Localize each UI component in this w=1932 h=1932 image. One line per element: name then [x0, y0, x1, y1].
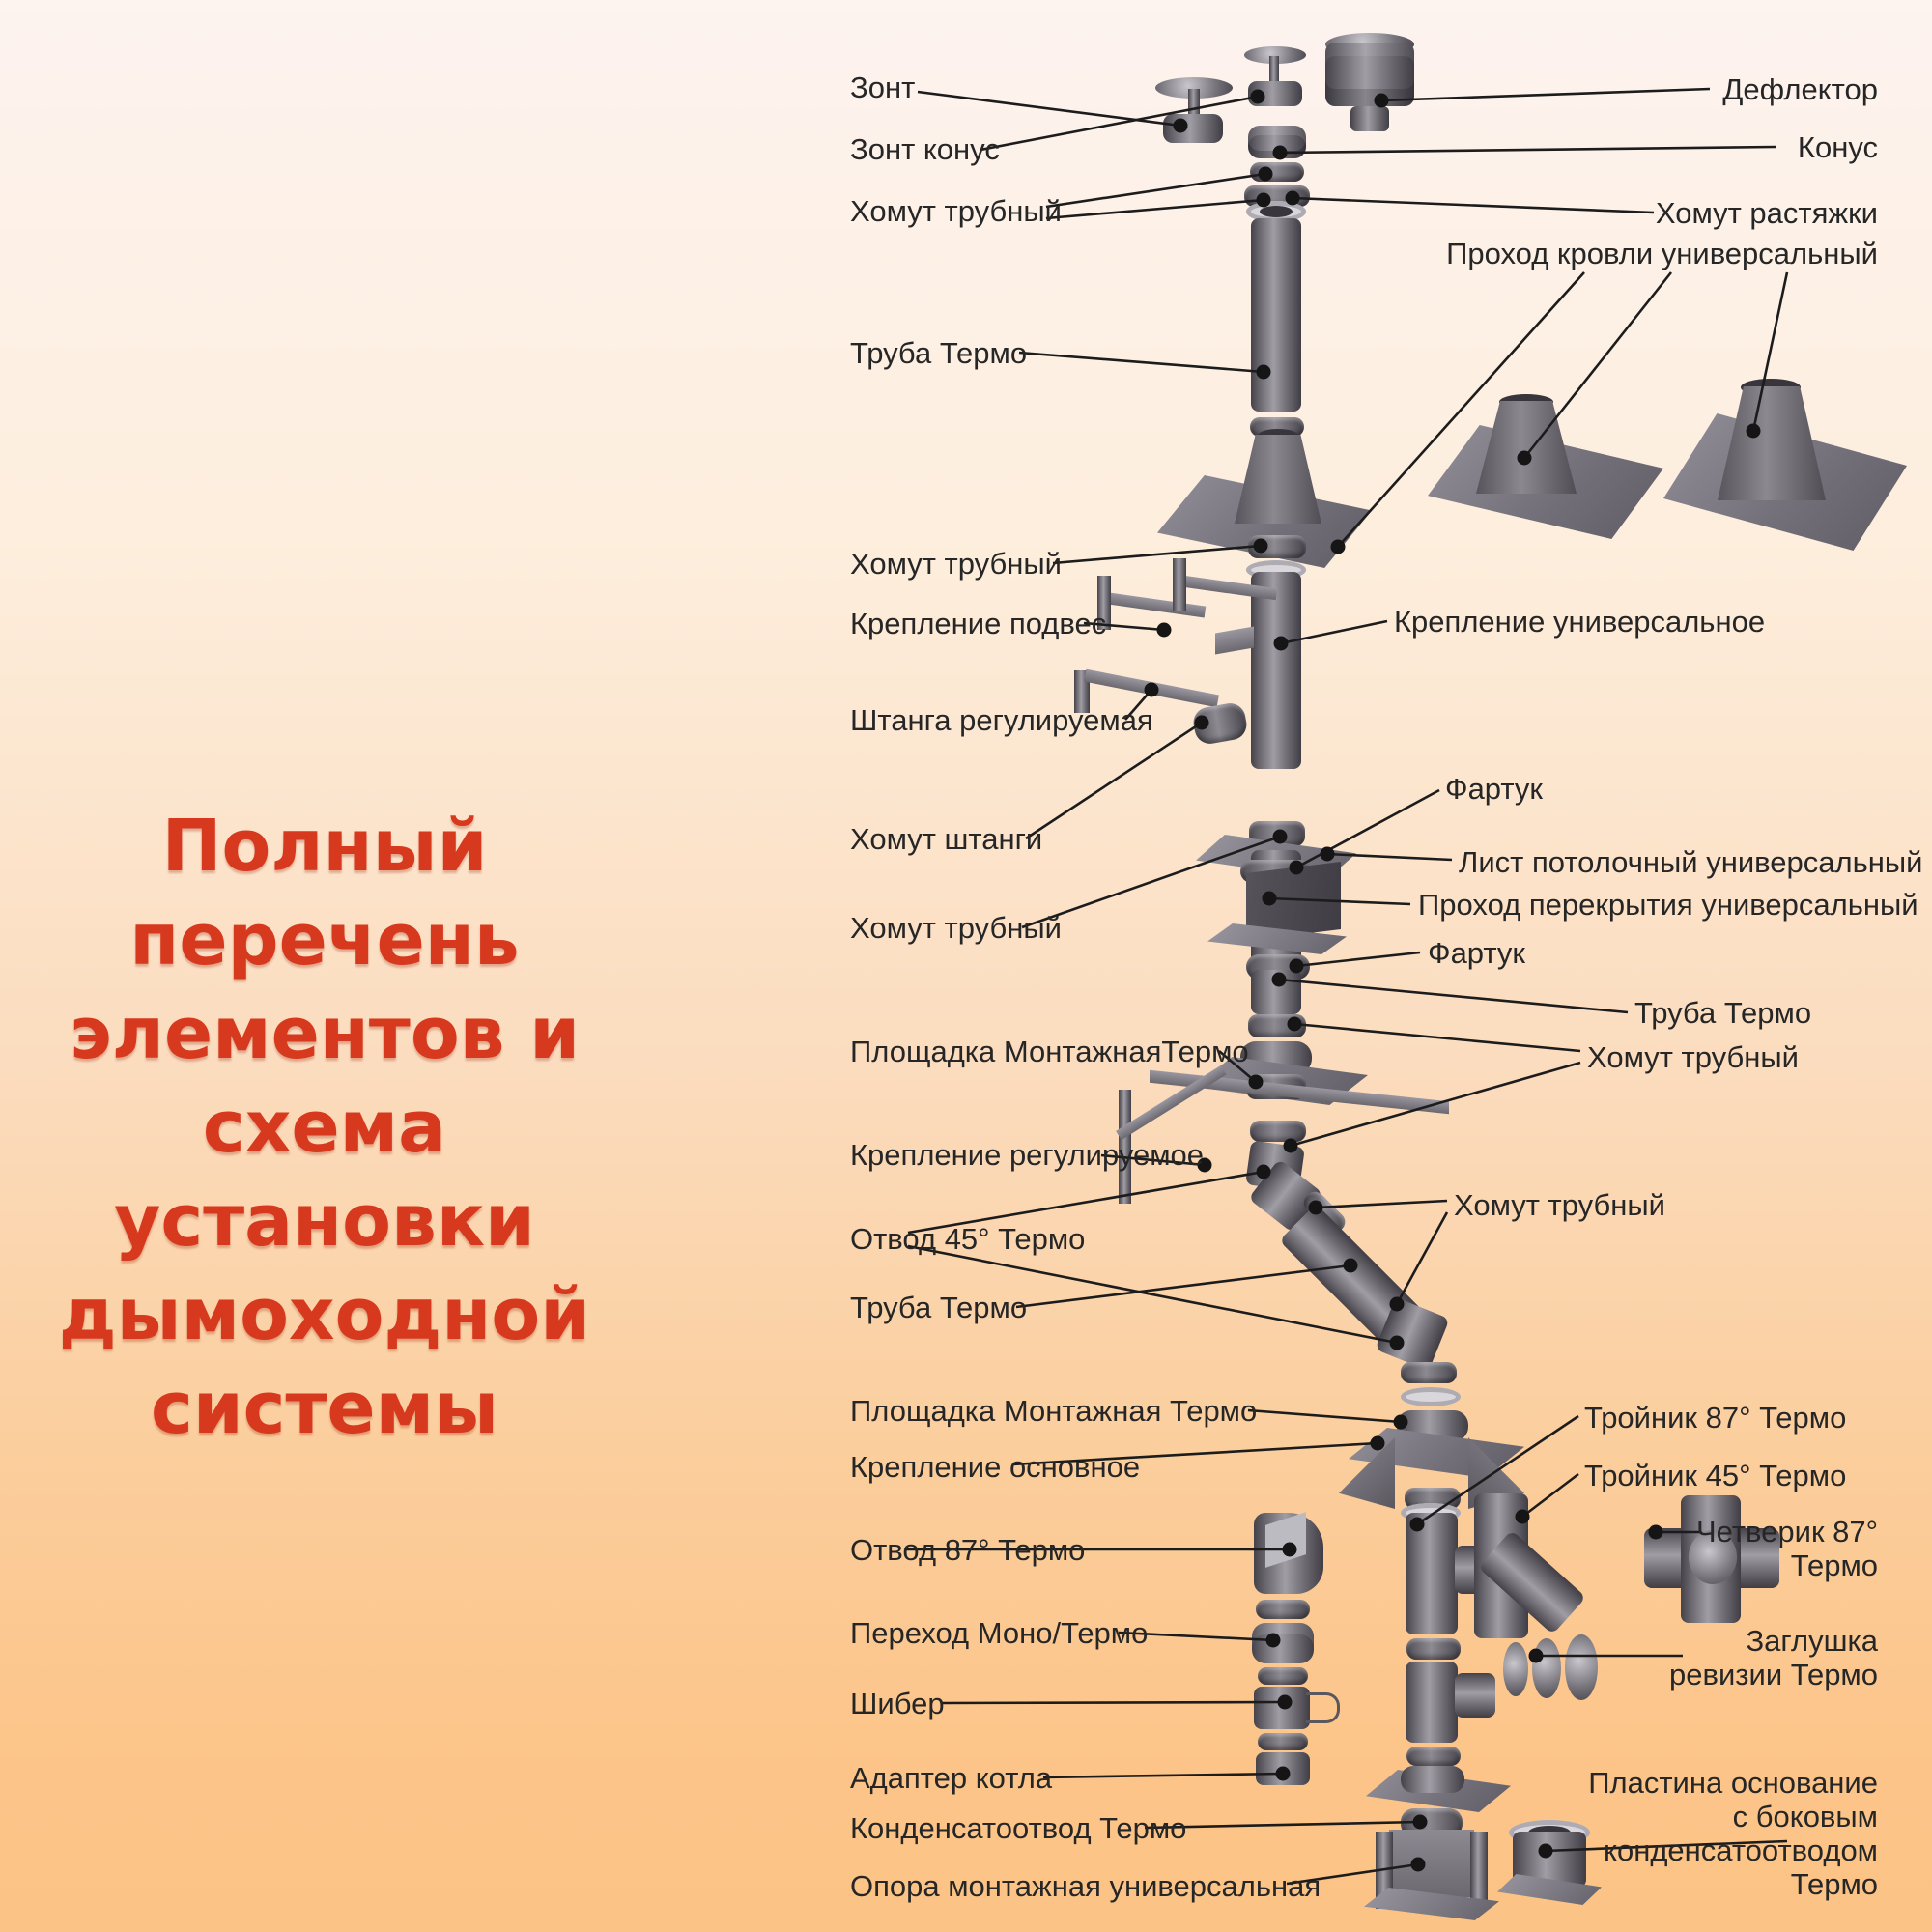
label-chetverik-line2: Термо	[1696, 1548, 1878, 1582]
label-otvod-87: Отвод 87° Термо	[850, 1533, 1085, 1567]
label-deflektor: Дефлектор	[1722, 72, 1878, 106]
label-fartuk-1: Фартук	[1445, 772, 1543, 806]
label-ploshchadka-1: Площадка МонтажнаяТермо	[850, 1035, 1249, 1068]
label-kreplenie-reg: Крепление регулируемое	[850, 1138, 1204, 1172]
label-opora: Опора монтажная универсальная	[850, 1869, 1321, 1903]
title-line-1: Полный перечень	[15, 800, 634, 987]
label-kondensatootvod: Конденсатоотвод Термо	[850, 1811, 1186, 1845]
label-plastina-line2: с боковым	[1588, 1800, 1878, 1833]
label-plastina: Пластина основание с боковым конденсатоо…	[1588, 1766, 1878, 1901]
label-konus: Конус	[1798, 130, 1878, 164]
label-homut-trubny-top: Хомут трубный	[850, 194, 1062, 228]
label-homut-shtangi: Хомут штанги	[850, 822, 1042, 856]
label-adapter: Адаптер котла	[850, 1761, 1052, 1795]
label-fartuk-2: Фартук	[1428, 936, 1525, 970]
label-zont: Зонт	[850, 71, 915, 104]
label-homut-trubny-right-b: Хомут трубный	[1454, 1188, 1665, 1222]
label-plastina-line1: Пластина основание	[1588, 1766, 1878, 1800]
label-homut-trubny-2: Хомут трубный	[850, 547, 1062, 581]
title-line-5: системы	[15, 1362, 634, 1456]
label-chetverik-line1: Четверик 87°	[1696, 1515, 1878, 1548]
label-shtanga: Штанга регулируемая	[850, 703, 1153, 737]
label-otvod-45: Отвод 45° Термо	[850, 1222, 1085, 1256]
label-troynik-45: Тройник 45° Термо	[1584, 1459, 1846, 1492]
label-ploshchadka-2: Площадка Монтажная Термо	[850, 1394, 1257, 1428]
label-zaglushka-line2: ревизии Термо	[1669, 1658, 1878, 1691]
label-perekhod: Переход Моно/Термо	[850, 1616, 1148, 1650]
label-list-potolochny: Лист потолочный универсальный	[1459, 845, 1922, 879]
label-homut-trubny-right-a: Хомут трубный	[1587, 1040, 1799, 1074]
label-prohod-perekrytiya: Проход перекрытия универсальный	[1418, 888, 1918, 922]
title-line-3: установки	[15, 1175, 634, 1268]
infographic-chimney-system: Полный перечень элементов и схема устано…	[0, 0, 1932, 1932]
label-homut-rastyazhki: Хомут растяжки	[1656, 196, 1878, 230]
label-kreplenie-podves: Крепление подвес	[850, 607, 1106, 640]
label-plastina-line4: Термо	[1588, 1867, 1878, 1901]
label-kreplenie-univ: Крепление универсальное	[1394, 605, 1765, 639]
label-truba-termo-2: Труба Термо	[850, 1291, 1027, 1324]
label-kreplenie-osn: Крепление основное	[850, 1450, 1140, 1484]
label-chetverik: Четверик 87° Термо	[1696, 1515, 1878, 1582]
label-homut-trubny-3: Хомут трубный	[850, 911, 1062, 945]
label-zaglushka: Заглушка ревизии Термо	[1669, 1624, 1878, 1691]
label-shiber: Шибер	[850, 1687, 945, 1720]
label-plastina-line3: конденсатоотводом	[1588, 1833, 1878, 1867]
label-prohod-krovli: Проход кровли универсальный	[1446, 237, 1878, 270]
label-truba-termo-1: Труба Термо	[850, 336, 1027, 370]
label-truba-termo-right: Труба Термо	[1634, 996, 1811, 1030]
label-zont-konus: Зонт конус	[850, 132, 1000, 166]
title-line-2: элементов и схема	[15, 987, 634, 1175]
title-line-4: дымоходной	[15, 1268, 634, 1362]
label-troynik-87: Тройник 87° Термо	[1584, 1401, 1846, 1435]
page-title: Полный перечень элементов и схема устано…	[15, 800, 634, 1456]
label-zaglushka-line1: Заглушка	[1669, 1624, 1878, 1658]
